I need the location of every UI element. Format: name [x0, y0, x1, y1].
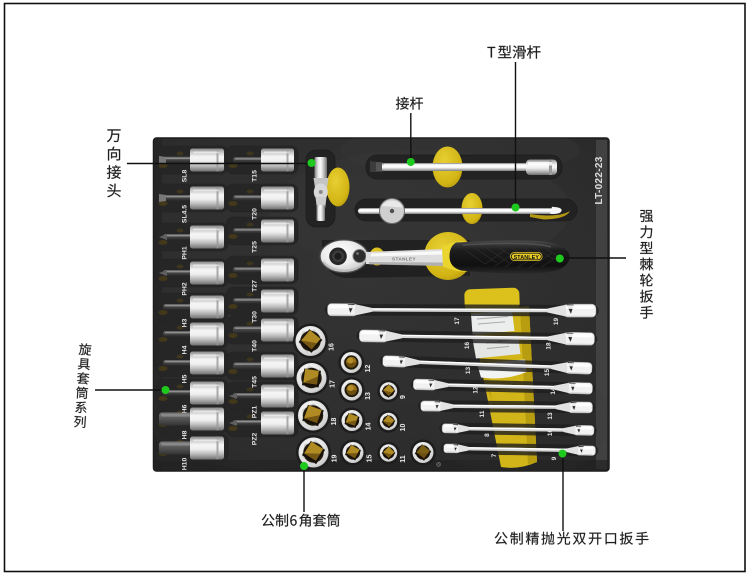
svg-text:LT-022-23: LT-022-23	[594, 156, 605, 204]
svg-text:7: 7	[491, 453, 498, 457]
svg-text:15: 15	[367, 455, 374, 463]
svg-text:9: 9	[551, 456, 558, 460]
svg-text:T25: T25	[252, 241, 259, 253]
svg-text:T27: T27	[252, 280, 259, 292]
svg-text:PH2: PH2	[182, 282, 189, 295]
svg-text:9: 9	[400, 395, 407, 399]
svg-text:T45: T45	[252, 376, 259, 388]
svg-text:19: 19	[553, 318, 560, 326]
svg-text:14: 14	[550, 387, 557, 395]
svg-text:H4: H4	[182, 345, 189, 354]
svg-text:SL8: SL8	[182, 170, 189, 183]
svg-text:H6: H6	[182, 404, 189, 413]
svg-text:T20: T20	[252, 208, 259, 220]
svg-text:17: 17	[330, 380, 337, 388]
svg-text:PH1: PH1	[182, 246, 189, 259]
svg-text:H5: H5	[182, 374, 189, 383]
svg-text:T15: T15	[252, 170, 259, 182]
svg-text:12: 12	[473, 386, 480, 394]
svg-text:T40: T40	[252, 340, 259, 352]
svg-text:STANLEY: STANLEY	[514, 255, 540, 261]
svg-text:14: 14	[366, 423, 373, 431]
svg-text:SL4.5: SL4.5	[182, 205, 189, 223]
svg-text:H3: H3	[182, 318, 189, 327]
svg-text:11: 11	[479, 410, 486, 417]
svg-text:PZ2: PZ2	[252, 433, 259, 446]
svg-text:13: 13	[547, 412, 554, 420]
svg-text:17: 17	[454, 317, 461, 325]
svg-text:16: 16	[329, 343, 336, 351]
svg-text:PZ1: PZ1	[252, 406, 259, 419]
svg-text:19: 19	[332, 455, 339, 463]
svg-text:15: 15	[544, 369, 551, 377]
svg-text:10: 10	[547, 429, 554, 437]
svg-text:H10: H10	[182, 458, 189, 471]
svg-text:18: 18	[545, 342, 552, 350]
svg-text:13: 13	[365, 392, 372, 400]
svg-text:T30: T30	[252, 311, 259, 323]
svg-text:16: 16	[464, 342, 471, 350]
svg-text:18: 18	[331, 418, 338, 426]
svg-text:8: 8	[484, 433, 491, 437]
svg-text:H8: H8	[182, 430, 189, 439]
svg-text:STANLEY: STANLEY	[392, 257, 416, 262]
svg-text:10: 10	[400, 424, 407, 432]
svg-text:◎: ◎	[436, 462, 441, 468]
svg-text:13: 13	[465, 367, 472, 375]
svg-text:12: 12	[365, 365, 372, 373]
svg-text:11: 11	[400, 455, 407, 463]
